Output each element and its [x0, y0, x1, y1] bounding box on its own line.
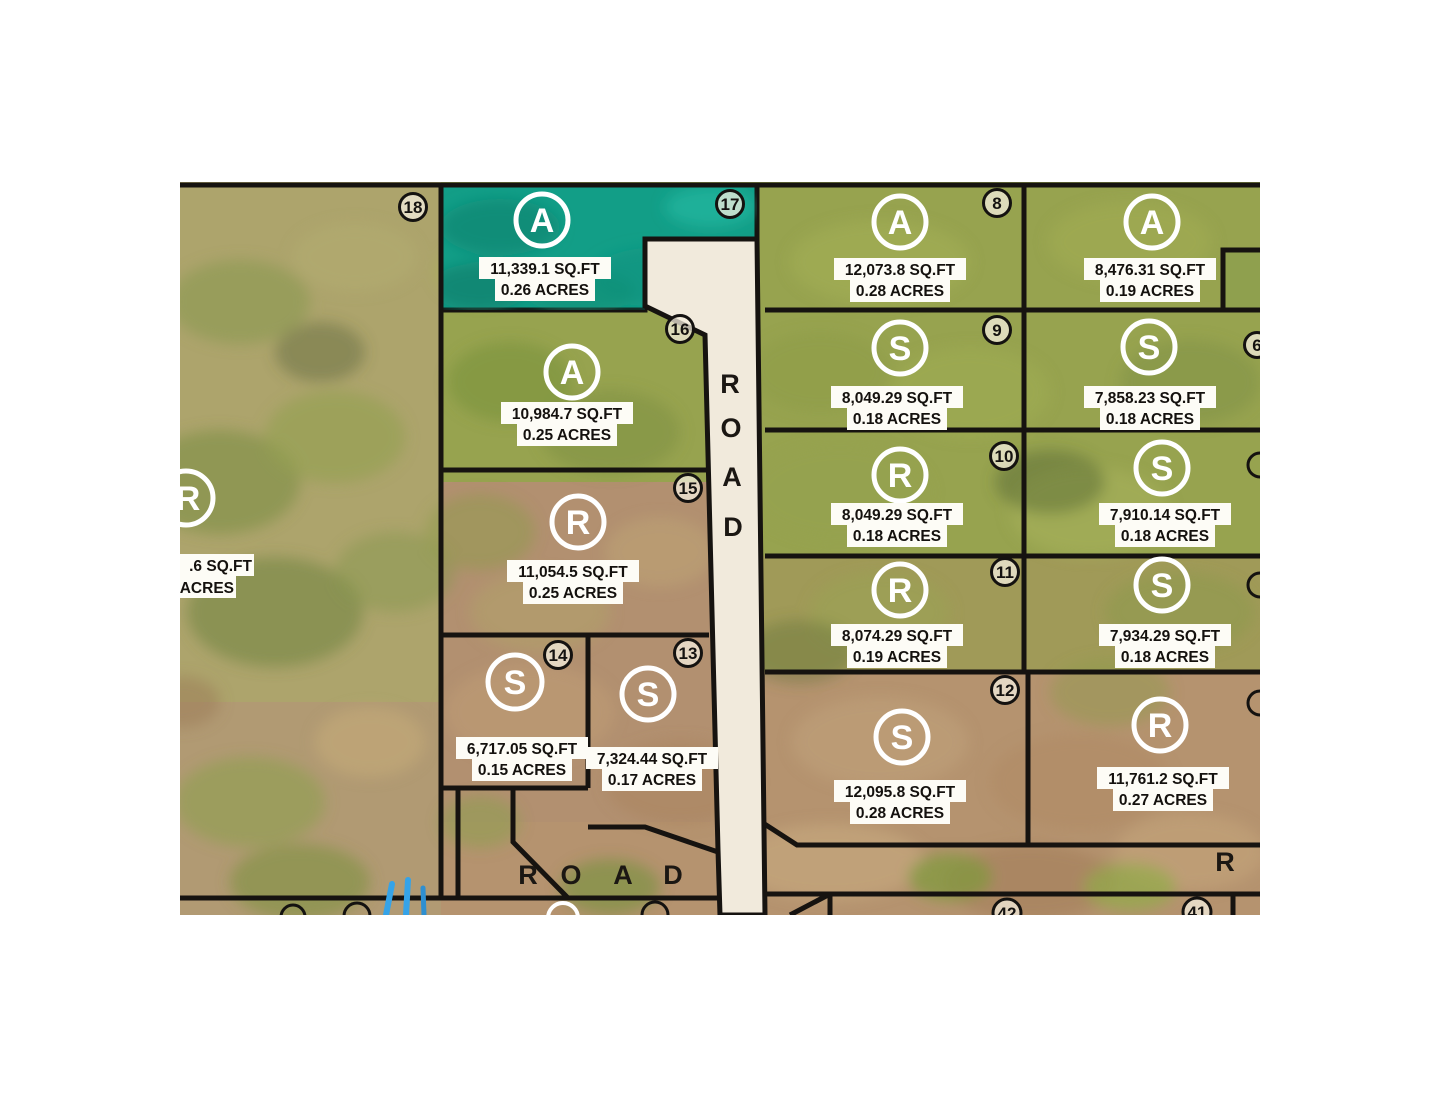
svg-text:6,717.05 SQ.FT: 6,717.05 SQ.FT	[467, 741, 578, 758]
lot-14-badge: 14	[545, 642, 572, 669]
svg-text:R: R	[1148, 707, 1173, 745]
road-letter: O	[720, 413, 741, 443]
lot-9-badge: 9	[984, 317, 1011, 344]
lot-6-badge: 6	[1245, 333, 1261, 358]
road-letter: R	[518, 860, 538, 890]
svg-text:0.15 ACRES: 0.15 ACRES	[478, 762, 566, 779]
lot-14-label: 6,717.05 SQ.FT 0.15 ACRES	[456, 737, 588, 781]
svg-text:R: R	[566, 504, 591, 542]
lot-r2-label: 7,858.23 SQ.FT 0.18 ACRES	[1084, 386, 1216, 430]
svg-text:7,858.23 SQ.FT: 7,858.23 SQ.FT	[1095, 390, 1206, 407]
svg-text:11,339.1 SQ.FT: 11,339.1 SQ.FT	[490, 261, 600, 278]
svg-text:7,324.44 SQ.FT: 7,324.44 SQ.FT	[597, 751, 708, 768]
svg-text:15: 15	[679, 479, 698, 498]
svg-text:42: 42	[998, 904, 1017, 915]
svg-text:10,984.7 SQ.FT: 10,984.7 SQ.FT	[512, 406, 623, 423]
svg-text:6: 6	[1252, 336, 1260, 355]
road-letter: D	[723, 512, 743, 542]
lot-10-badge: 10	[991, 443, 1018, 470]
svg-text:R: R	[888, 457, 913, 495]
svg-text:12,073.8 SQ.FT: 12,073.8 SQ.FT	[845, 262, 956, 279]
svg-text:S: S	[1151, 450, 1174, 488]
svg-text:7,934.29 SQ.FT: 7,934.29 SQ.FT	[1110, 628, 1221, 645]
plot-map-screenshot: R O A D R O A D R A A R S S A S R R S A …	[0, 0, 1440, 1098]
svg-text:.6 SQ.FT: .6 SQ.FT	[189, 558, 252, 575]
svg-text:12,095.8 SQ.FT: 12,095.8 SQ.FT	[845, 784, 956, 801]
lot-8-label: 12,073.8 SQ.FT 0.28 ACRES	[834, 258, 966, 302]
svg-text:S: S	[1151, 567, 1174, 605]
lot-13-label: 7,324.44 SQ.FT 0.17 ACRES	[586, 747, 718, 791]
road-letter: O	[560, 860, 581, 890]
lot-15-label: 11,054.5 SQ.FT 0.25 ACRES	[507, 560, 639, 604]
svg-text:0.19 ACRES: 0.19 ACRES	[853, 649, 941, 666]
svg-text:11,054.5 SQ.FT: 11,054.5 SQ.FT	[518, 564, 628, 581]
right-road-letter: R	[1215, 847, 1235, 877]
svg-text:0.18 ACRES: 0.18 ACRES	[853, 528, 941, 545]
lot-r1-label: 8,476.31 SQ.FT 0.19 ACRES	[1084, 258, 1216, 302]
svg-text:17: 17	[721, 195, 740, 214]
lot-12-label: 12,095.8 SQ.FT 0.28 ACRES	[834, 780, 966, 824]
svg-text:0.17 ACRES: 0.17 ACRES	[608, 772, 696, 789]
svg-text:0.19 ACRES: 0.19 ACRES	[1106, 283, 1194, 300]
svg-text:11,761.2 SQ.FT: 11,761.2 SQ.FT	[1108, 771, 1218, 788]
svg-text:S: S	[1138, 329, 1161, 367]
lot-10-label: 8,049.29 SQ.FT 0.18 ACRES	[831, 503, 963, 547]
svg-text:13: 13	[679, 644, 698, 663]
svg-text:8: 8	[992, 194, 1001, 213]
lot-8-badge: 8	[984, 190, 1011, 217]
svg-text:10: 10	[995, 447, 1014, 466]
svg-text:18: 18	[404, 198, 423, 217]
lot-13-badge: 13	[675, 640, 702, 667]
lot-42-badge: 42	[993, 899, 1021, 915]
svg-text:ACRES: ACRES	[180, 580, 234, 597]
svg-text:14: 14	[549, 646, 568, 665]
svg-text:8,476.31 SQ.FT: 8,476.31 SQ.FT	[1095, 262, 1206, 279]
svg-text:S: S	[504, 664, 527, 702]
svg-text:A: A	[530, 202, 555, 240]
svg-text:A: A	[560, 354, 585, 392]
svg-text:9: 9	[992, 321, 1001, 340]
svg-text:A: A	[888, 204, 913, 242]
svg-text:11: 11	[996, 563, 1014, 582]
road-letter: A	[613, 860, 633, 890]
svg-text:0.18 ACRES: 0.18 ACRES	[1121, 649, 1209, 666]
road-letter: D	[663, 860, 683, 890]
right-edge-cutout-parcel	[1223, 250, 1260, 310]
svg-text:41: 41	[1188, 903, 1207, 915]
road-letter: A	[722, 462, 742, 492]
svg-text:S: S	[891, 719, 914, 757]
svg-text:0.18 ACRES: 0.18 ACRES	[1121, 528, 1209, 545]
svg-text:12: 12	[996, 681, 1015, 700]
svg-text:R: R	[888, 572, 913, 610]
lot-16-badge: 16	[667, 316, 694, 343]
svg-text:0.25 ACRES: 0.25 ACRES	[523, 427, 611, 444]
svg-text:0.28 ACRES: 0.28 ACRES	[856, 805, 944, 822]
svg-text:8,049.29 SQ.FT: 8,049.29 SQ.FT	[842, 507, 953, 524]
lot-r3-label: 7,910.14 SQ.FT 0.18 ACRES	[1099, 503, 1231, 547]
svg-text:0.26 ACRES: 0.26 ACRES	[501, 282, 589, 299]
lot-16-label: 10,984.7 SQ.FT 0.25 ACRES	[501, 402, 633, 446]
svg-text:8,049.29 SQ.FT: 8,049.29 SQ.FT	[842, 390, 953, 407]
lot-11-badge: 11	[992, 559, 1019, 586]
lot-9-label: 8,049.29 SQ.FT 0.18 ACRES	[831, 386, 963, 430]
road-letter: R	[720, 369, 740, 399]
svg-text:0.18 ACRES: 0.18 ACRES	[853, 411, 941, 428]
lot-11-label: 8,074.29 SQ.FT 0.19 ACRES	[831, 624, 963, 668]
svg-text:8,074.29 SQ.FT: 8,074.29 SQ.FT	[842, 628, 953, 645]
lot-17-label: 11,339.1 SQ.FT 0.26 ACRES	[479, 257, 611, 301]
svg-text:A: A	[1140, 204, 1165, 242]
svg-text:0.25 ACRES: 0.25 ACRES	[529, 585, 617, 602]
svg-text:R: R	[180, 480, 200, 518]
svg-text:0.27 ACRES: 0.27 ACRES	[1119, 792, 1207, 809]
lot-18-badge: 18	[400, 194, 427, 221]
lot-15-badge: 15	[675, 475, 702, 502]
lot-r4-label: 7,934.29 SQ.FT 0.18 ACRES	[1099, 624, 1231, 668]
plot-map-svg: R O A D R O A D R A A R S S A S R R S A …	[180, 182, 1260, 915]
lot-r5-label: 11,761.2 SQ.FT 0.27 ACRES	[1097, 767, 1229, 811]
svg-text:S: S	[889, 330, 912, 368]
lot-17-badge: 17	[717, 191, 744, 218]
svg-text:7,910.14 SQ.FT: 7,910.14 SQ.FT	[1110, 507, 1221, 524]
svg-text:16: 16	[671, 320, 690, 339]
svg-text:0.28 ACRES: 0.28 ACRES	[856, 283, 944, 300]
lot-12-badge: 12	[992, 677, 1019, 704]
svg-text:0.18 ACRES: 0.18 ACRES	[1106, 411, 1194, 428]
lot-41-badge: 41	[1183, 898, 1211, 915]
aerial-plot-map: R O A D R O A D R A A R S S A S R R S A …	[180, 182, 1260, 915]
svg-text:S: S	[637, 676, 660, 714]
